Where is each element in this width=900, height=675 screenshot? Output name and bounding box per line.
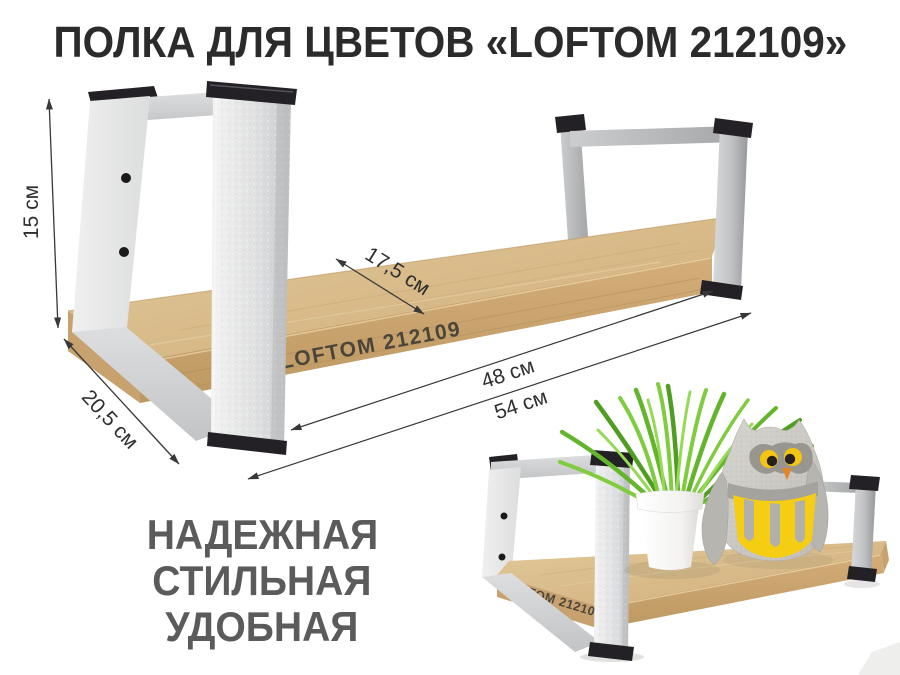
dim-mount-width-label: 48 см: [479, 354, 538, 393]
feature-claims: НАДЕЖНАЯ СТИЛЬНАЯ УДОБНАЯ: [82, 512, 442, 650]
screw-hole-icon: [121, 173, 131, 183]
right-front-post: [713, 125, 748, 291]
main-photo: LOFTOM 212109: [20, 81, 753, 479]
small-photo: LOFTOM 212109: [482, 384, 900, 675]
owl-eye-mask: [749, 442, 813, 473]
right-top-bar: [570, 126, 738, 147]
screw-hole-icon: [501, 513, 508, 520]
screw-hole-icon: [499, 554, 506, 561]
owl-pupil-icon: [767, 456, 777, 466]
owl-belly-stripe: [795, 500, 805, 543]
dimension-height: 15 см: [20, 99, 58, 328]
corner-shade: [858, 642, 900, 675]
feature-line: НАДЕЖНАЯ: [82, 512, 442, 558]
pot-rim: [636, 491, 704, 513]
owl-pupil-icon: [785, 454, 795, 464]
owl-belly-stripe: [744, 499, 754, 541]
owl-belly-stripe: [770, 503, 780, 547]
feature-line: УДОБНАЯ: [82, 604, 442, 650]
right-rear-cap-icon: [555, 114, 586, 133]
small-right-cap-icon: [849, 475, 880, 491]
pot-body: [641, 507, 699, 570]
dim-total-width-label: 54 см: [492, 385, 551, 424]
feature-line: СТИЛЬНАЯ: [82, 558, 442, 604]
dim-height-label: 15 см: [20, 185, 43, 239]
product-listing-image: ПОЛКА ДЛЯ ЦВЕТОВ «LOFTOM 212109»: [0, 0, 900, 675]
screw-hole-icon: [119, 247, 129, 257]
